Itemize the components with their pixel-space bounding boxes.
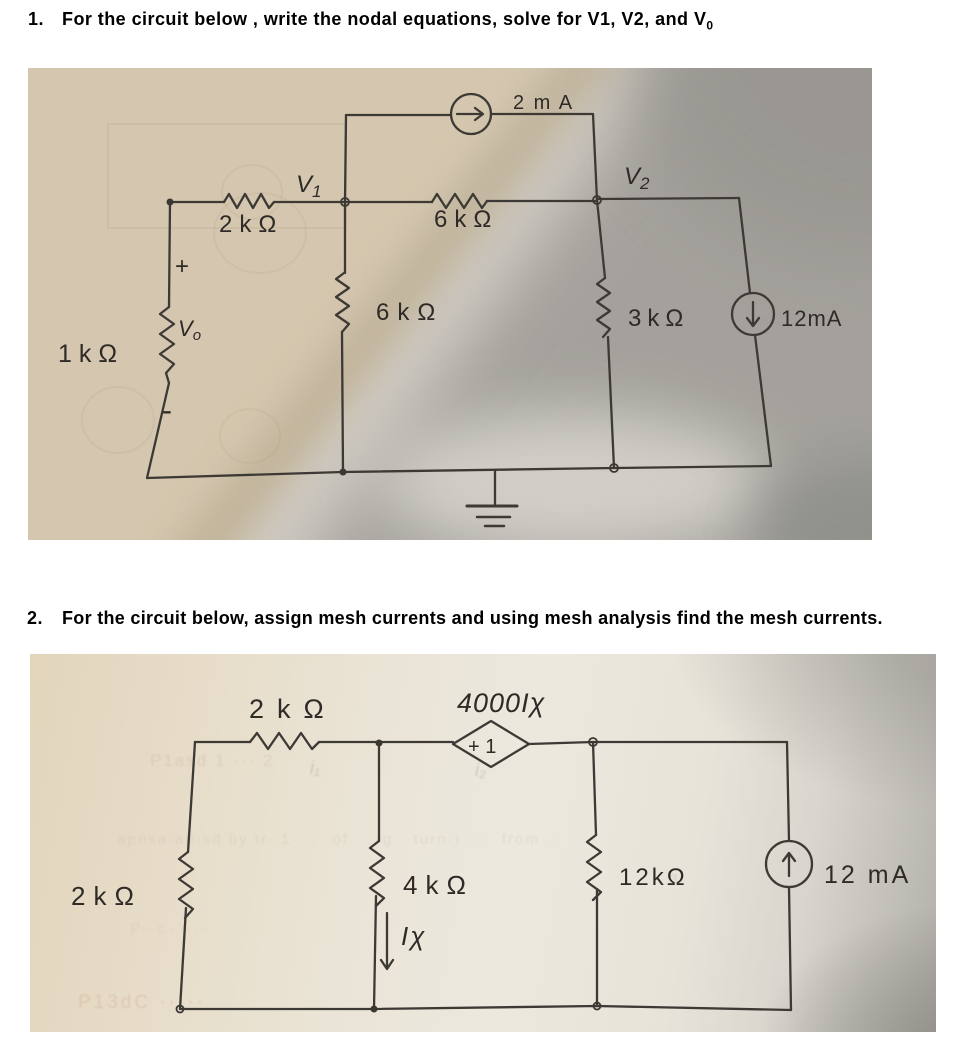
svg-text:··· apnsa·ab·sd by tr· 1·····: ··· apnsa·ab·sd by tr· 1····· of ···rg··… (90, 831, 560, 848)
svg-text:P1asd 1 ··· 2: P1asd 1 ··· 2 (150, 751, 274, 770)
svg-text:+: + (175, 253, 189, 280)
svg-text:12 mA: 12 mA (824, 861, 911, 889)
svg-text:12mA: 12mA (781, 306, 842, 331)
svg-text:Vo: Vo (178, 316, 201, 344)
svg-text:Iχ: Iχ (401, 921, 426, 951)
svg-text:1kΩ: 1kΩ (58, 340, 124, 368)
svg-text:P···c · ·· ···: P···c · ·· ··· (130, 921, 210, 938)
svg-text:-: - (162, 394, 172, 427)
svg-text:4kΩ: 4kΩ (403, 870, 474, 900)
svg-text:6kΩ: 6kΩ (434, 206, 498, 233)
svg-text:+ 1: + 1 (468, 736, 496, 758)
svg-text:2kΩ: 2kΩ (249, 694, 337, 724)
svg-text:V1: V1 (296, 171, 321, 201)
svg-text:i₁: i₁ (310, 758, 320, 778)
svg-text:2kΩ: 2kΩ (71, 881, 142, 911)
svg-text:4000Iχ: 4000Iχ (457, 688, 546, 718)
svg-text:6kΩ: 6kΩ (376, 299, 443, 326)
svg-text:3kΩ: 3kΩ (628, 305, 689, 332)
svg-text:12kΩ: 12kΩ (619, 864, 688, 891)
svg-text:2 m A: 2 m A (513, 92, 574, 114)
svg-text:2kΩ: 2kΩ (219, 211, 283, 238)
